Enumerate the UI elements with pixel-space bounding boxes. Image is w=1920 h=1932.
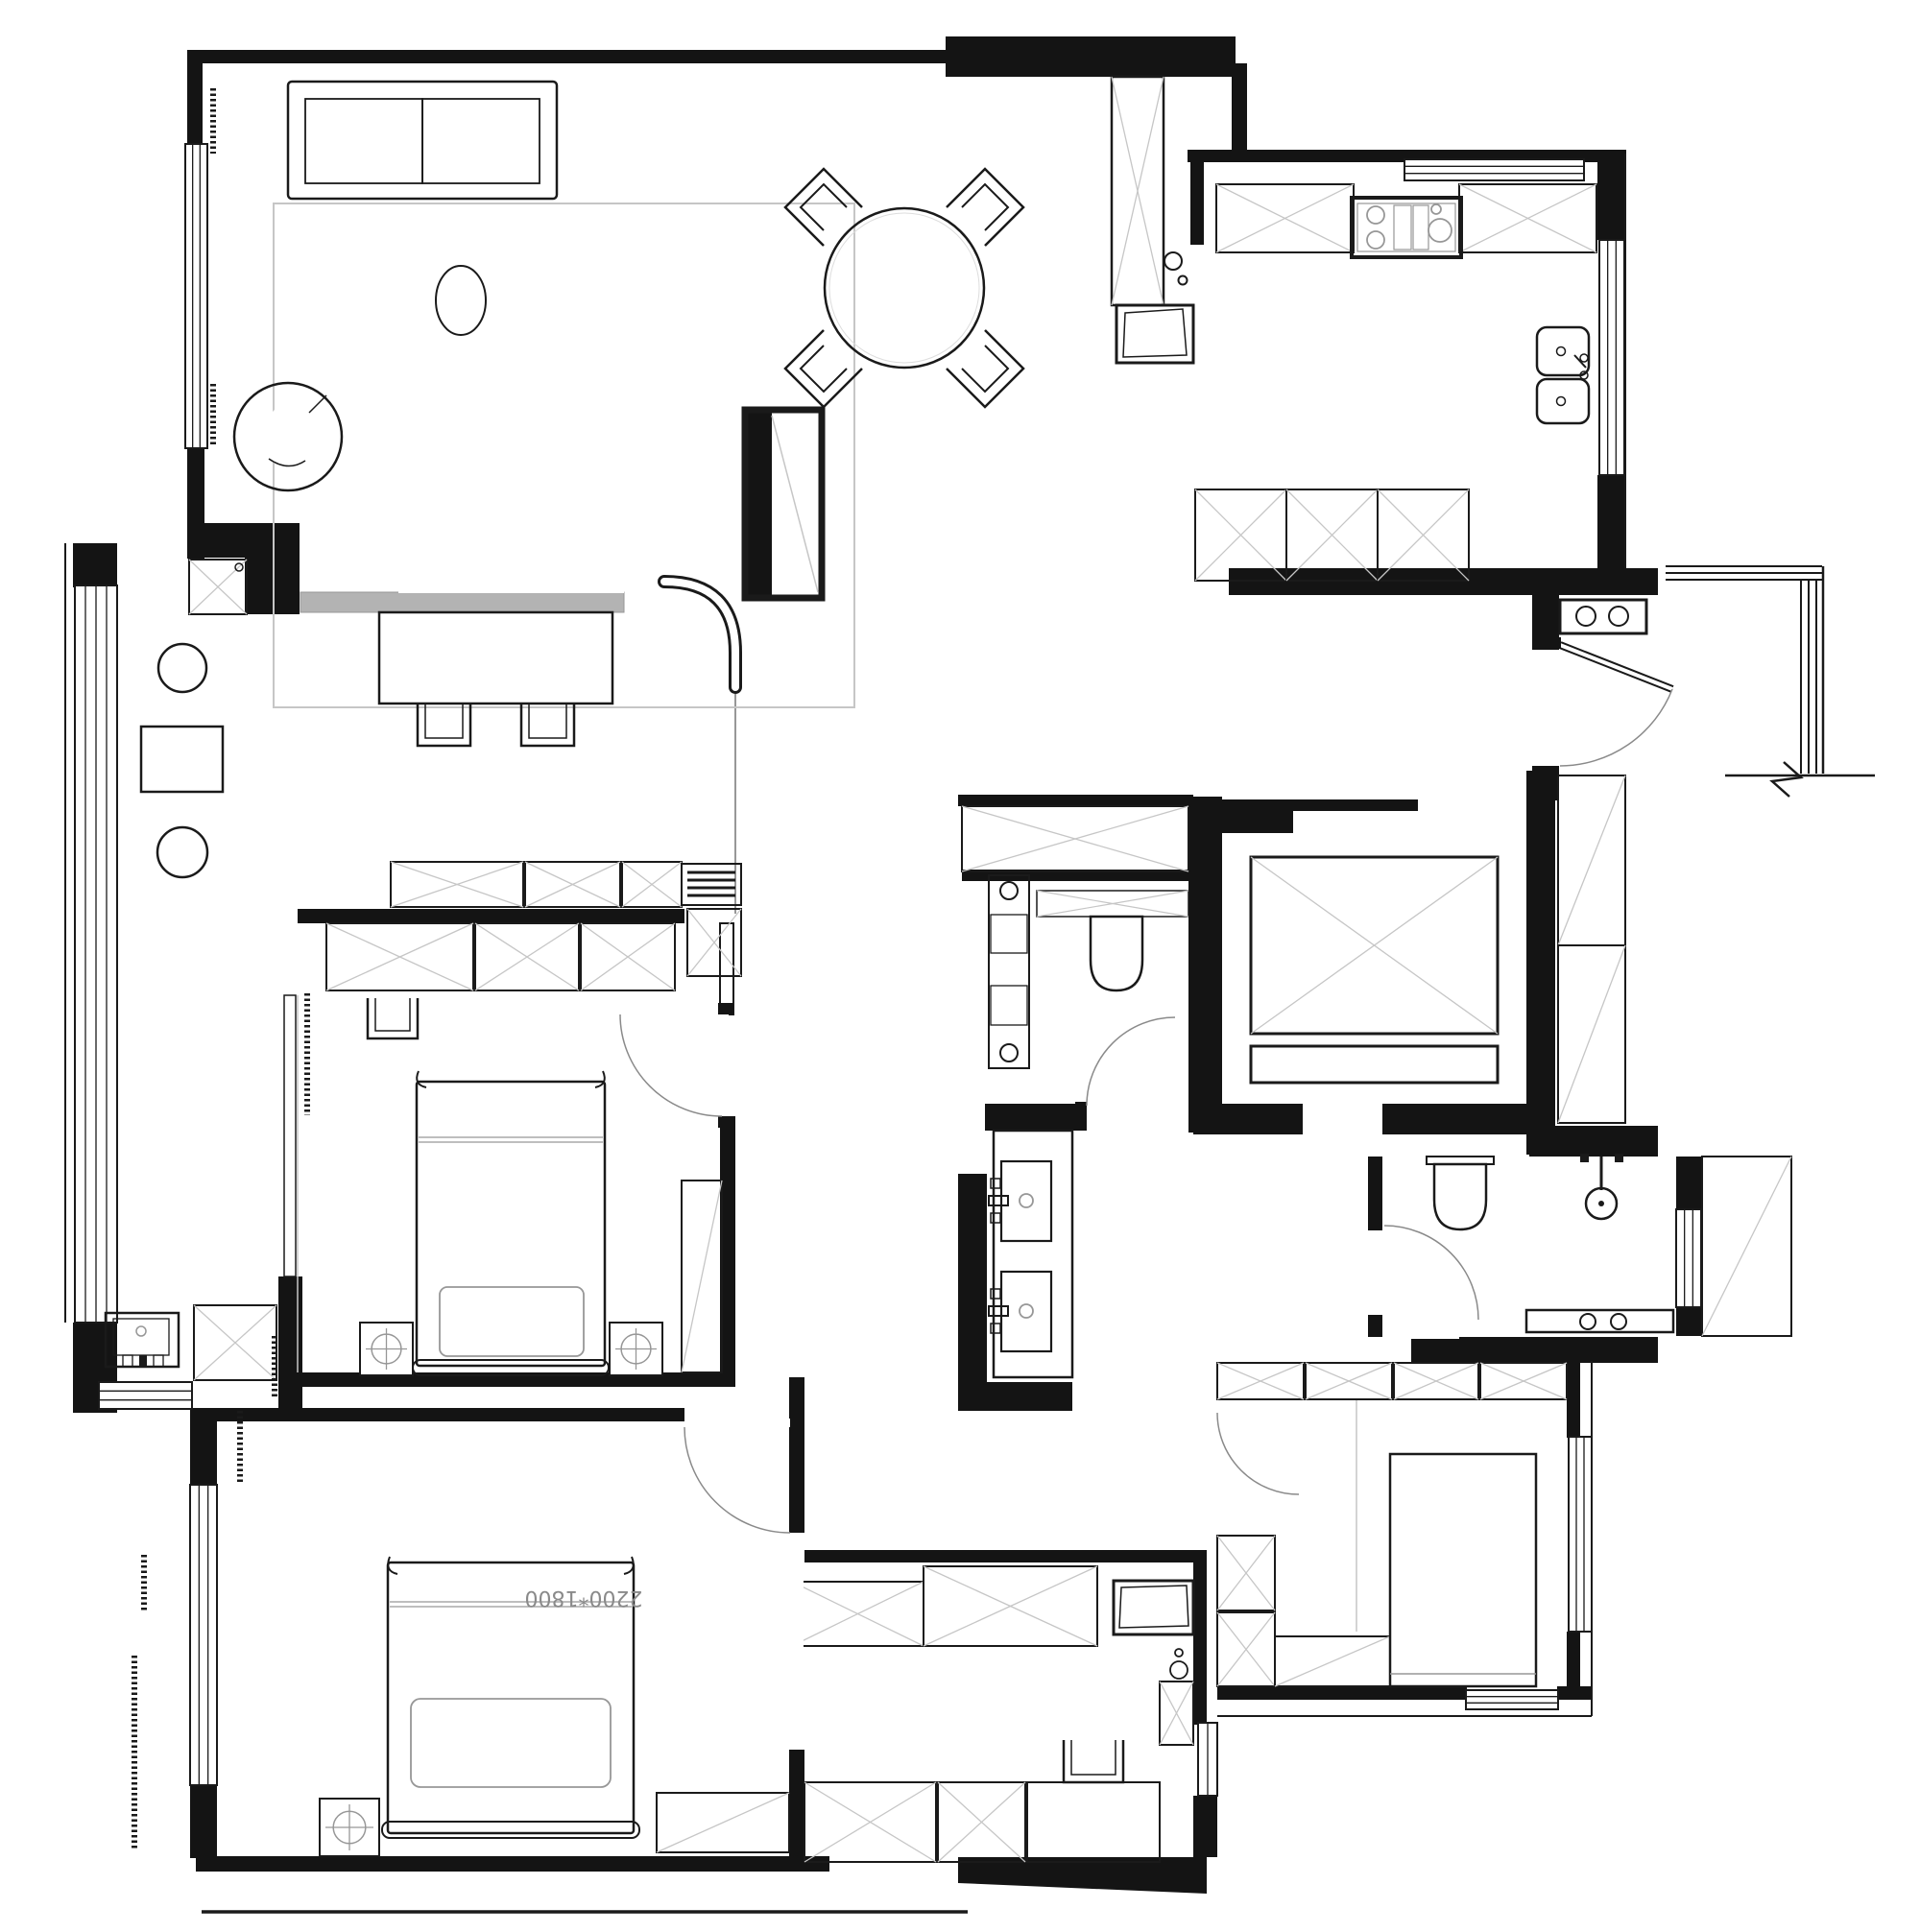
bed3-curl-l: [388, 1557, 397, 1574]
window-balcony-sill: [99, 1382, 192, 1409]
bed3-blanket: [411, 1699, 611, 1787]
floor-plan-canvas: 2200*1800: [0, 0, 1920, 1932]
wall-corridor: [298, 909, 684, 923]
vanity-counter: [994, 1131, 1072, 1377]
bed2-stool-inner: [375, 998, 410, 1031]
vanity-knob-1a: [991, 1179, 1000, 1188]
wall-brbed-bot-l: [1217, 1686, 1467, 1700]
wall-kitchen-right-low: [1597, 475, 1626, 570]
column-diag: [772, 416, 818, 592]
wall-wc-top: [958, 795, 1193, 806]
laundry-sink-inner: [1119, 1586, 1188, 1628]
bed2-curl-r: [595, 1071, 605, 1087]
bed2-body: [417, 1082, 605, 1366]
stove-grate-2: [1413, 205, 1428, 250]
shower-valve-2: [1615, 1154, 1623, 1162]
bmroom-base-3: [1027, 1782, 1160, 1862]
bed3-size-label: 2200*1800: [525, 1586, 643, 1610]
sofa-cushion-2: [422, 99, 540, 183]
wall-top-header: [946, 36, 1236, 77]
chair-sw-in: [801, 346, 847, 392]
entry-door-jamb: [1549, 637, 1561, 649]
vanity-tap-1: [989, 1196, 1008, 1205]
vanity-drain-1: [1020, 1194, 1033, 1207]
door4-arc: [1217, 1413, 1299, 1494]
wall-brbed-top: [1411, 1339, 1658, 1363]
balcony-machine: [141, 727, 223, 792]
door1-leaf: [719, 1014, 729, 1116]
wall-kitchen-right-up: [1597, 150, 1626, 240]
stove-burner-2: [1367, 231, 1384, 249]
sink-tap-1: [1580, 354, 1588, 362]
wall-bath2-win-low: [1676, 1307, 1702, 1336]
column-fill: [745, 410, 772, 598]
armchair-deco1: [309, 395, 326, 413]
wall-brbed-bot-r: [1557, 1686, 1592, 1700]
wc-appliance-knob-1: [1000, 882, 1018, 899]
wall-bed3-bot: [196, 1856, 829, 1872]
balcony-pot-2: [157, 827, 207, 877]
door1-jamb-b: [718, 1116, 733, 1128]
balcony-basin-k2: [139, 1355, 147, 1367]
wall-bed3-top: [196, 1408, 684, 1421]
balcony-basin-drain: [136, 1326, 146, 1336]
kitchen-sink-2: [1537, 379, 1589, 423]
vanity-knob-2a: [991, 1289, 1000, 1299]
balcony-basin-k3: [154, 1355, 163, 1367]
desk-chair-2-inner: [529, 704, 566, 738]
sliding-door-leaf: [790, 1536, 804, 1750]
balcony-pot-1: [158, 644, 206, 692]
entry-counter: [1560, 600, 1646, 633]
door2-jamb-a: [1075, 1102, 1087, 1115]
side-table: [436, 266, 486, 335]
balcony-basin-k1: [123, 1355, 132, 1367]
vanity-drain-2: [1020, 1304, 1033, 1318]
door3-arc: [684, 1427, 790, 1533]
wc-appliance-door-1: [991, 915, 1027, 953]
elevator-pit: [1251, 1046, 1498, 1083]
wall-bed3-right-b: [789, 1750, 804, 1872]
closet-elev-2-diag: [1558, 945, 1625, 1123]
entry-break-mark: [1772, 762, 1801, 797]
bed2-window-strip: [284, 995, 296, 1276]
kitchen-sink-1: [1537, 327, 1589, 375]
wall-wc-right: [1188, 797, 1222, 1133]
bath2-hole-1: [1580, 1314, 1596, 1329]
entry-door-leaf-inner: [1560, 645, 1672, 689]
door4-leaf: [1217, 1404, 1299, 1413]
study-shelf: [300, 592, 624, 612]
wall-elev-topline: [1193, 799, 1418, 811]
ac-vent: [682, 864, 741, 905]
wall-brbed-right-up: [1567, 1361, 1580, 1438]
balcony-basin-inner: [113, 1319, 169, 1355]
chair-ne-in: [962, 184, 1008, 230]
wc-appliance-knob-2: [1000, 1044, 1018, 1061]
wall-bmroom-right: [1193, 1550, 1207, 1725]
wall-elev-bot-rr: [1529, 1126, 1658, 1157]
wall-elev-right: [1526, 771, 1555, 1155]
wall-left-top: [187, 50, 203, 146]
chair-nw-in: [801, 184, 847, 230]
brbed-low-cabinet-diag: [1275, 1636, 1390, 1686]
stove-grate-1: [1394, 205, 1411, 250]
bmroom-knob-big: [1170, 1661, 1188, 1679]
study-shelf-top1: [398, 581, 573, 593]
wall-top-living: [187, 50, 967, 63]
desk: [379, 612, 612, 704]
sofa-cushion-1: [305, 99, 422, 183]
window-kitchen-right: [1599, 240, 1624, 475]
wall-wc-door: [985, 1104, 1087, 1131]
bath2-counter: [1526, 1310, 1673, 1332]
vanity-tap-2: [989, 1306, 1008, 1316]
brbed-bed: [1390, 1454, 1536, 1686]
closet-elev-1-diag: [1558, 775, 1625, 945]
window-living-left: [185, 144, 207, 448]
wall-bed3-left-b: [190, 1785, 217, 1858]
chair-sw: [785, 330, 862, 407]
prep-basin: [1116, 305, 1193, 363]
toilet-2: [1434, 1164, 1486, 1229]
wall-kitchen-left: [1190, 162, 1204, 245]
stove-burner-3: [1428, 219, 1452, 242]
stove-burner-4: [1431, 204, 1441, 214]
window-bath2-right: [1676, 1209, 1701, 1307]
shower-valve-1: [1580, 1154, 1589, 1162]
sink-drain-2: [1557, 397, 1566, 406]
closet-far-right-diag: [1702, 1157, 1791, 1336]
wall-vanity-bot: [958, 1382, 1072, 1411]
door2-leaf: [1170, 1019, 1179, 1104]
glass-partition: [664, 582, 735, 687]
vanity-knob-1b: [991, 1213, 1000, 1223]
door1-arc: [620, 1014, 722, 1116]
floor-plan-page: 2200*1800: [0, 0, 1920, 1932]
wall-bed3-right-m: [789, 1427, 804, 1533]
wall-vanity-left: [958, 1174, 987, 1401]
window-kitchen-top: [1404, 159, 1584, 180]
window-brbed-bot: [1466, 1690, 1558, 1709]
wall-balcony-cap: [73, 543, 117, 587]
wall-bmroom-right-b: [1193, 1796, 1217, 1857]
wc-appliance-col: [989, 875, 1029, 1068]
dining-table-inner: [829, 213, 979, 363]
bed2-door-wall: [720, 923, 733, 1014]
bed2-curl-l: [417, 1071, 426, 1087]
bmroom-knob-small: [1175, 1649, 1183, 1657]
bmroom-chair: [1064, 1740, 1123, 1782]
entry-burner-2: [1609, 607, 1628, 626]
wall-bath2-win-up: [1676, 1157, 1702, 1209]
door1-jamb-a: [718, 1003, 733, 1014]
prep-basin-inner: [1123, 309, 1187, 357]
wall-bed2-left-b: [278, 1276, 302, 1408]
bed3-footroll: [382, 1822, 639, 1838]
window-brbed-right: [1569, 1437, 1592, 1632]
chair-ne: [947, 169, 1023, 246]
entry-burner-1: [1576, 607, 1596, 626]
door3-leaf: [684, 1419, 790, 1427]
wall-bath2-left-low: [1368, 1315, 1382, 1337]
bmroom-chair-inner: [1071, 1740, 1116, 1775]
stove-burner-1: [1367, 206, 1384, 224]
window-bed3-left: [190, 1485, 217, 1785]
bed3-curl-r: [624, 1557, 634, 1574]
stove: [1352, 198, 1461, 257]
bath2-hole-2: [1611, 1314, 1626, 1329]
door2-arc: [1087, 1017, 1175, 1106]
entry-door-arc: [1560, 689, 1672, 766]
door5-arc: [1384, 1226, 1478, 1320]
sink-drain-1: [1557, 347, 1566, 356]
vanity-knob-2b: [991, 1324, 1000, 1333]
bed2-blanket: [440, 1287, 584, 1356]
wall-step-kitchen: [1232, 63, 1247, 152]
dining-table: [825, 208, 984, 368]
shower-dot: [1598, 1201, 1604, 1206]
toilet-1: [1091, 917, 1142, 990]
wc-appliance-door-2: [991, 986, 1027, 1025]
chair-se: [947, 330, 1023, 407]
desk-chair-1-inner: [425, 704, 463, 738]
chair-nw: [785, 169, 862, 246]
armchair-cushion: [248, 396, 328, 477]
wall-bed3-right-t: [789, 1377, 804, 1427]
wall-bmroom-top: [804, 1550, 1193, 1562]
prep-circle-big: [1164, 252, 1182, 270]
wall-bath2-left-up: [1368, 1157, 1382, 1230]
door5-leaf: [1384, 1315, 1478, 1324]
wall-balcony-block: [245, 555, 300, 614]
bed2-wardrobe-diag: [682, 1181, 722, 1372]
study-shelf-top2: [573, 581, 624, 593]
prep-circle-small: [1179, 276, 1188, 285]
wall-elev-bot-l: [1193, 1104, 1303, 1134]
bed3-wardrobe-diag: [657, 1793, 789, 1852]
wall-balcony-step: [190, 523, 300, 558]
chair-se-in: [962, 346, 1008, 392]
